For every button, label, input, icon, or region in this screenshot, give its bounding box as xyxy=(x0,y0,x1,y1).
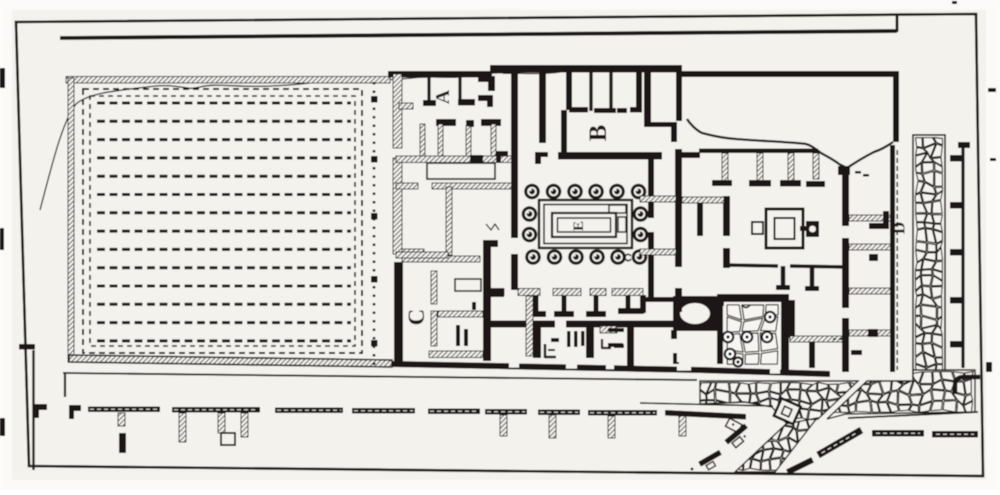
svg-text:B: B xyxy=(585,125,612,142)
svg-text:A: A xyxy=(432,89,454,104)
svg-text:D: D xyxy=(890,222,909,234)
svg-text:E: E xyxy=(571,221,587,231)
svg-text:C: C xyxy=(404,309,429,326)
